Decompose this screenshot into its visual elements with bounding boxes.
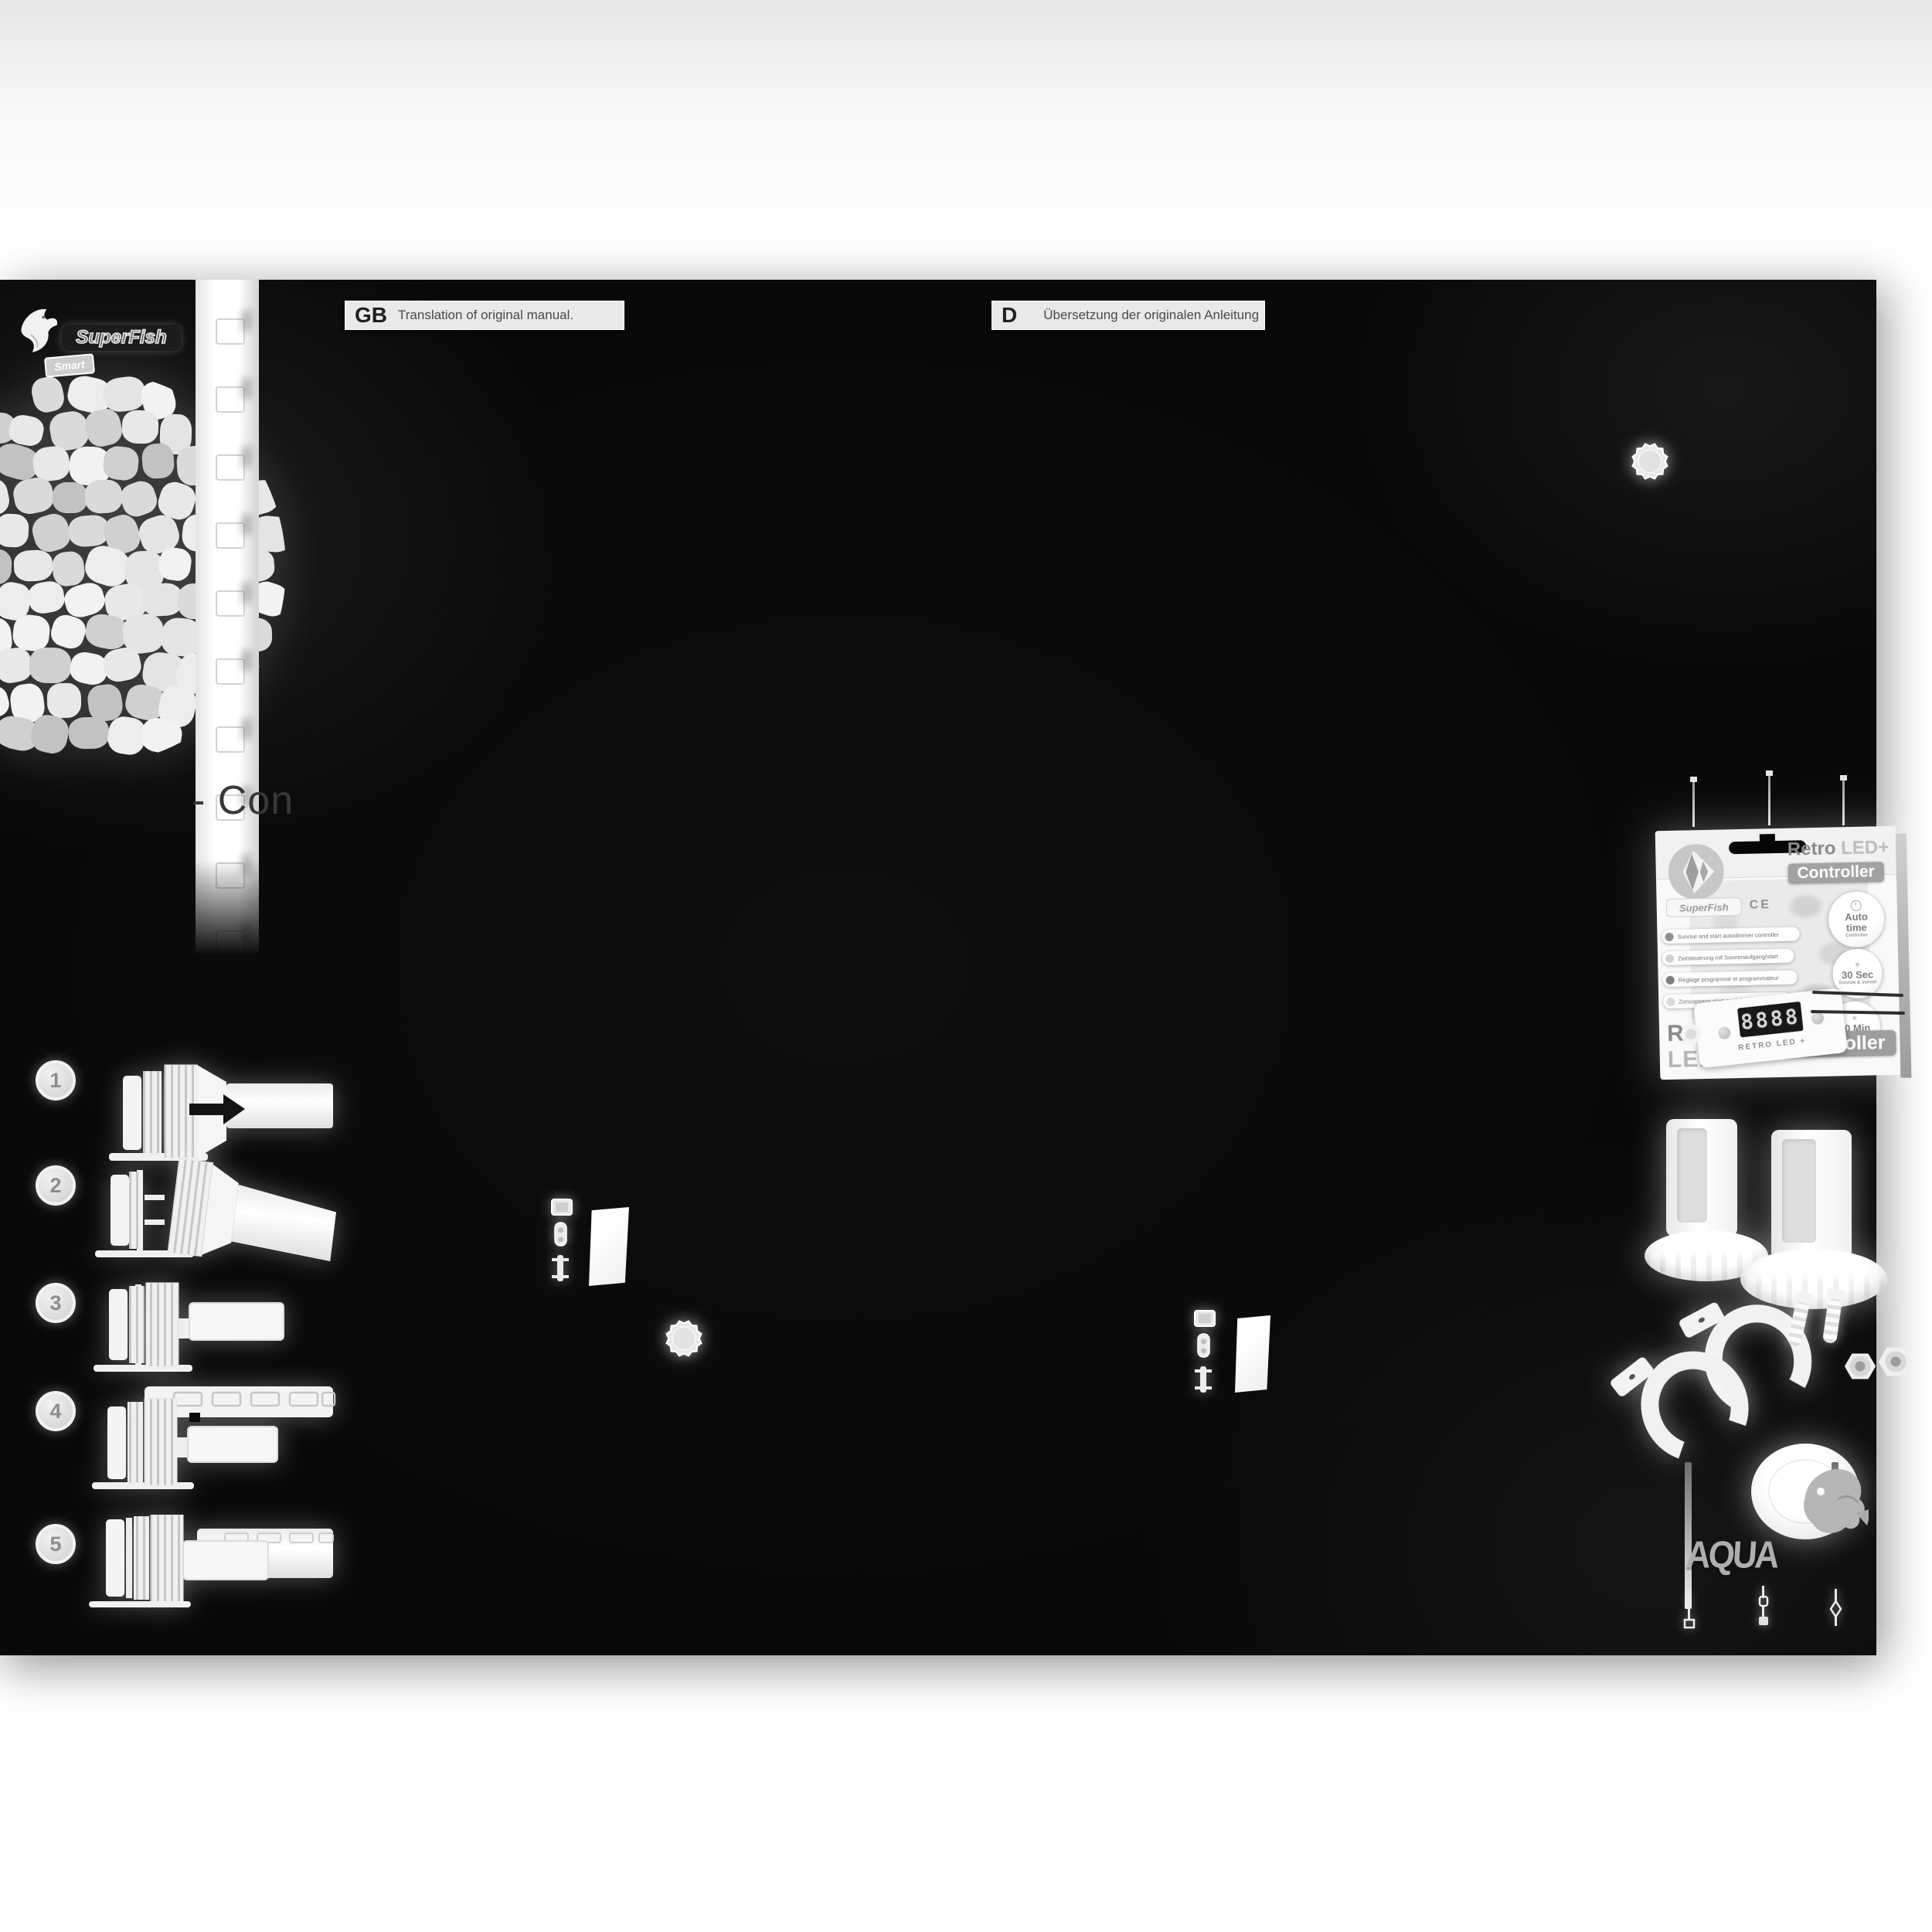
box-title-top: Retro LED+ Controller [1787,837,1890,884]
pebble [29,374,67,415]
glass-panel-left [589,1207,629,1286]
device-button [1718,1026,1732,1040]
led-chip [216,590,245,617]
step-4-diagram [73,1382,336,1498]
pebble [46,683,81,719]
led-chip [216,658,245,685]
pebble [52,482,87,514]
step-number-1: 1 [36,1060,76,1100]
retro-led-controller-box: Retro LED+ Controller SuperFish CE Sunri… [1655,826,1902,1080]
parts-cluster-right [1192,1308,1219,1400]
feature-ribbon: Réglage programmé et programmateur [1663,970,1798,987]
pebble [0,513,29,548]
gear-knob-icon [1631,443,1668,480]
tube-seam [242,379,251,399]
smart-badge: Smart [44,353,95,377]
wire [1768,776,1770,825]
language-bar-gb: GB Translation of original manual. [345,301,624,330]
led-chip [216,930,245,957]
flag-icon [1665,954,1674,962]
led-chip [216,318,245,345]
led-chip [216,862,245,889]
manual-page: GB Translation of original manual. D Übe… [0,0,1932,1932]
step-1-diagram [73,1053,336,1168]
feature-ribbon: Zeitsteuerung mit Sonnenaufgang/start [1662,949,1794,966]
pebble [121,410,159,444]
superfish-mini-logo: SuperFish [1666,897,1742,917]
flag-icon [1665,932,1673,940]
feature-ribbon: Sunrise and start autodimmer controller [1662,927,1799,944]
tube-seam [242,719,251,739]
aqua-logo: AQUA [1685,1534,1778,1577]
pebble [141,443,175,480]
pebble [69,716,110,749]
pebble [47,611,88,651]
led-chip [216,386,245,413]
partial-product-title: - Con [192,777,294,824]
ce-mark: CE [1750,898,1772,913]
tube-seam [242,651,251,671]
pin-icon [1682,1590,1697,1629]
pin-icon [1828,1589,1844,1628]
pond-fish-icon [1791,1447,1869,1543]
pebble [29,510,75,555]
pebble [13,549,53,582]
fish-icon [14,303,62,359]
flag-icon [1666,997,1675,1005]
language-text-d: Übersetzung der originalen Anleitung [1043,308,1259,323]
language-bar-d: D Übersetzung der originalen Anleitung [992,301,1265,330]
language-code-d: D [1002,303,1017,328]
pebble [84,479,123,514]
step-number-4: 4 [36,1391,76,1431]
led-tube [196,280,259,962]
tube-seam [242,583,251,603]
step-number-3: 3 [36,1283,76,1323]
clock-icon [1851,900,1862,911]
glass-panel-right [1235,1315,1270,1393]
superfish-logo: SuperFish Smart [14,303,62,362]
pebble [29,648,70,684]
step-number-5: 5 [36,1524,76,1564]
gear-knob-icon [665,1320,702,1357]
device-button [1811,1012,1825,1026]
pebble [102,444,140,481]
tube-seam [242,855,251,875]
pebble [11,475,56,517]
step-5-diagram [73,1515,336,1611]
tube-seam [242,515,251,535]
t8-adapter-socket [1740,1130,1887,1309]
nut [1878,1346,1913,1377]
step-2-diagram [73,1158,336,1274]
pin-icon [1756,1586,1771,1628]
pebble [0,476,12,519]
controller-badge-top: Controller [1787,862,1884,884]
step-number-2: 2 [36,1165,76,1206]
pebble [0,548,12,585]
led-chip [216,454,245,481]
led-chip [216,726,245,753]
led-chip [216,522,245,549]
seven-segment-display: 8888 [1737,1002,1804,1038]
step-3-diagram [73,1277,336,1377]
wire [1842,781,1845,825]
superfish-wordmark: SuperFish [62,325,181,351]
language-text-gb: Translation of original manual. [398,308,573,323]
pebble [12,613,52,652]
auto-time-badge: Auto time Controller [1828,891,1884,947]
parts-cluster-left [549,1196,577,1289]
tube-seam [242,923,251,943]
tube-seam [242,447,251,467]
flag-icon [1666,975,1675,984]
wire [1692,782,1695,827]
pebble [82,406,124,450]
language-code-gb: GB [355,303,387,328]
angelfish-icon [1668,843,1724,900]
tube-seam [242,311,251,331]
